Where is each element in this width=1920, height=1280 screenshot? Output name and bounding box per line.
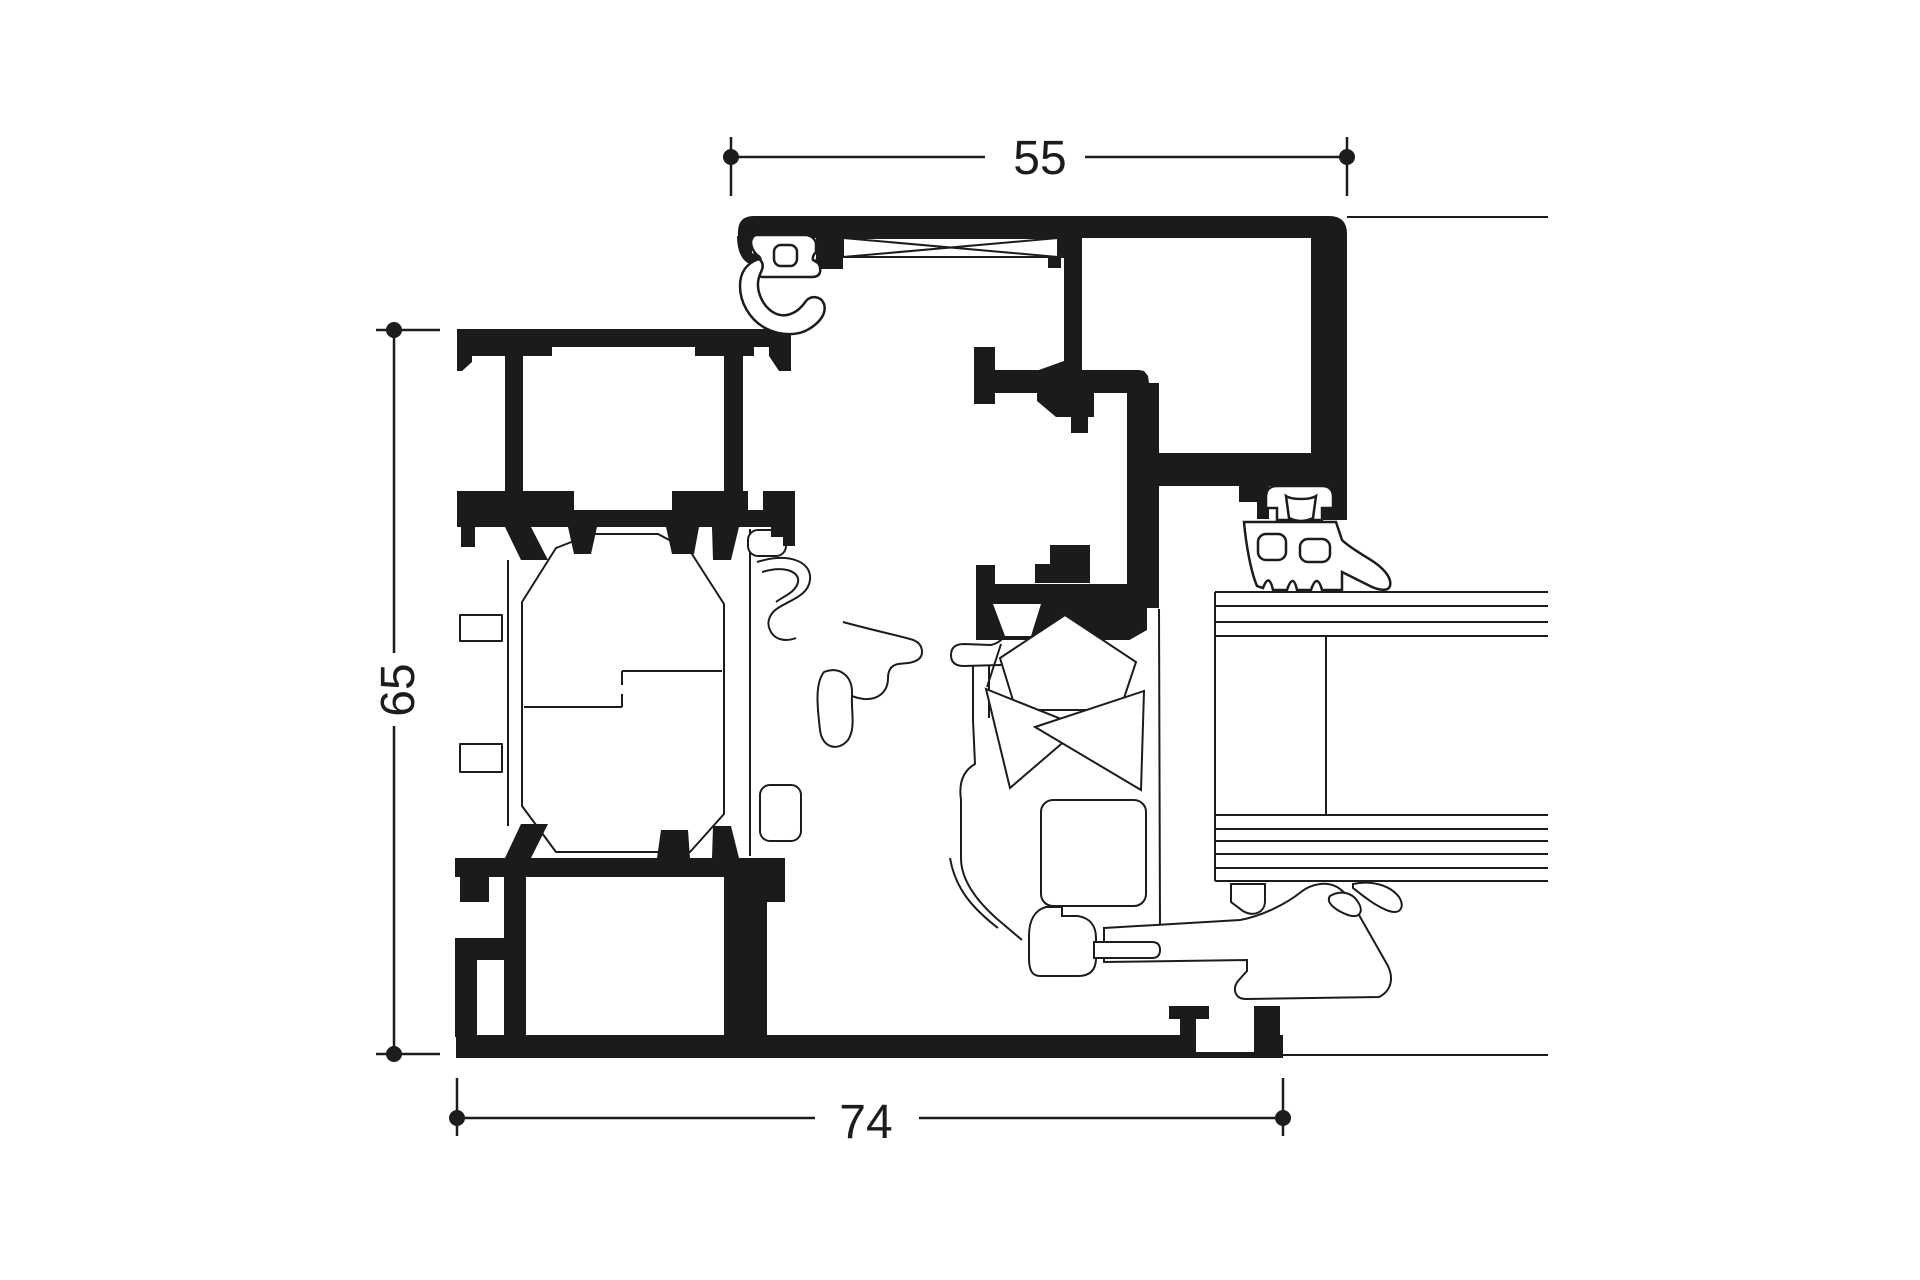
svg-text:74: 74 [839, 1096, 892, 1149]
svg-text:65: 65 [372, 663, 425, 716]
svg-text:55: 55 [1013, 132, 1066, 185]
